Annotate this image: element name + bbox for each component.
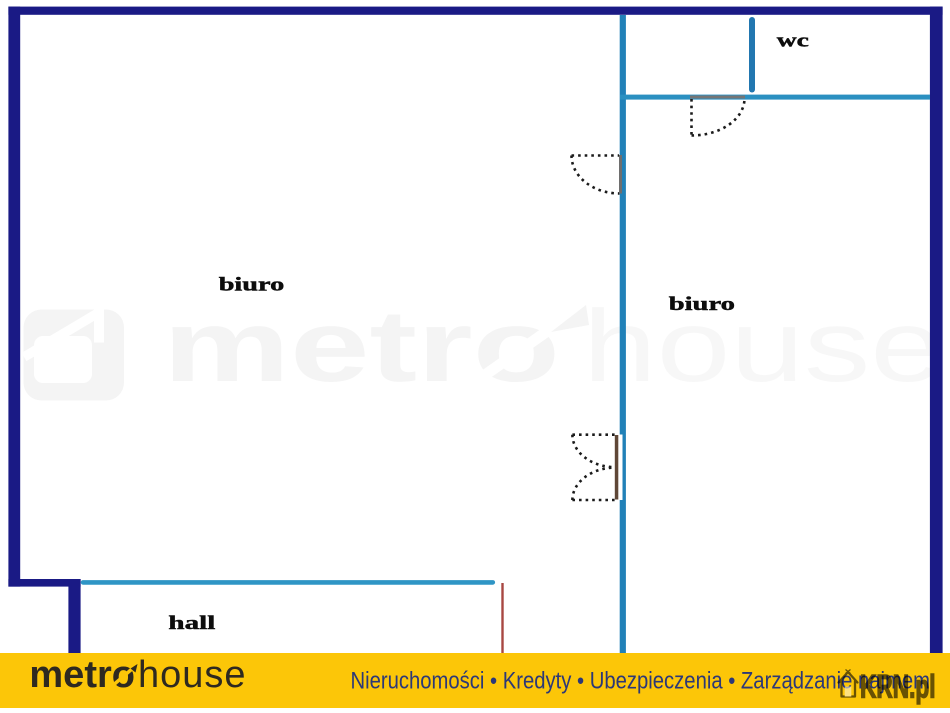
svg-text:metro: metro xyxy=(163,290,560,403)
svg-text:biuro: biuro xyxy=(669,294,735,315)
svg-text:house: house xyxy=(583,290,944,404)
svg-text:KRN.pl: KRN.pl xyxy=(860,669,936,705)
svg-text:hall: hall xyxy=(168,613,215,634)
svg-text:biuro: biuro xyxy=(219,275,285,295)
svg-text:metro: metro xyxy=(29,654,135,696)
svg-text:Nieruchomości • Kredyty • Ubez: Nieruchomości • Kredyty • Ubezpieczenia … xyxy=(351,667,931,694)
svg-text:wc: wc xyxy=(777,31,809,52)
svg-text:house: house xyxy=(138,654,247,696)
